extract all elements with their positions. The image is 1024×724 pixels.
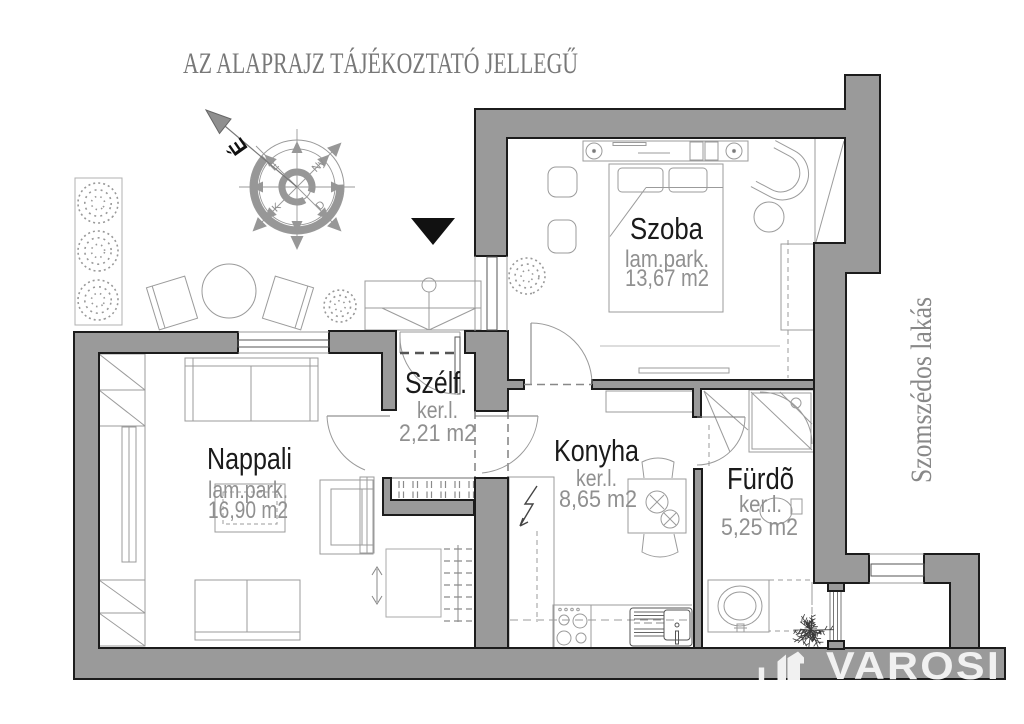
svg-text:AZ ALAPRAJZ TÁJÉKOZTATÓ JELLE: AZ ALAPRAJZ TÁJÉKOZTATÓ JELLEGŰ <box>183 47 578 80</box>
svg-text:Szélf.: Szélf. <box>405 365 467 400</box>
svg-text:8,65 m2: 8,65 m2 <box>559 486 637 513</box>
svg-text:Szomszédos lakás: Szomszédos lakás <box>905 297 938 483</box>
svg-text:VAROSI: VAROSI <box>826 645 1001 688</box>
svg-text:16,90 m2: 16,90 m2 <box>208 497 288 524</box>
svg-text:Konyha: Konyha <box>554 433 640 468</box>
svg-text:2,21 m2: 2,21 m2 <box>399 420 476 447</box>
svg-text:Szoba: Szoba <box>630 211 704 246</box>
svg-text:Nappali: Nappali <box>207 441 292 476</box>
svg-text:13,67 m2: 13,67 m2 <box>625 265 709 292</box>
svg-text:5,25 m2: 5,25 m2 <box>721 514 798 541</box>
